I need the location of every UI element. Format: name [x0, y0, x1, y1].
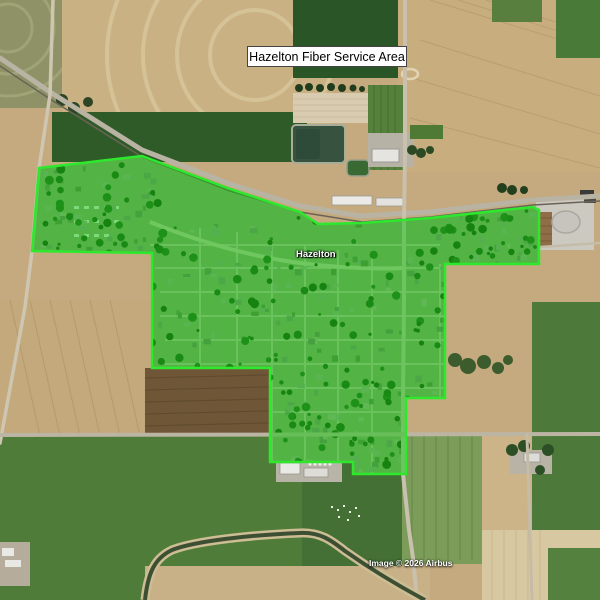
service-area-title: Hazelton Fiber Service Area — [247, 46, 407, 67]
imagery-attribution: Image © 2026 Airbus — [369, 558, 452, 568]
town-label-hazelton: Hazelton — [296, 249, 336, 260]
satellite-map[interactable] — [0, 0, 600, 600]
map-canvas[interactable]: Hazelton Fiber Service Area Hazelton Ima… — [0, 0, 600, 600]
